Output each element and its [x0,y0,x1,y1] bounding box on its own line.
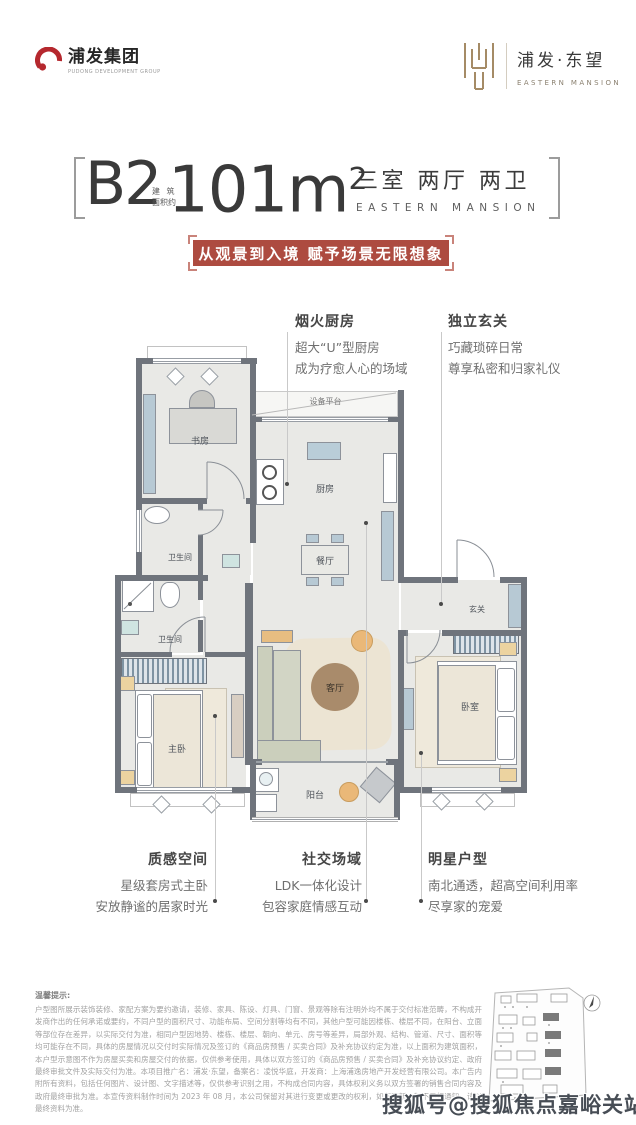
callout-master-title: 质感空间 [58,849,208,869]
room-label-bath2: 卫生间 [148,634,192,645]
callout-social-line1: LDK一体化设计 [218,875,362,896]
room-label-balcony: 阳台 [295,788,335,801]
callout-star: 明星户型 南北通透，超高空间利用率 尽享家的宠爱 [428,849,623,917]
title-bracket-left [74,157,85,219]
leader-line-entry [441,332,442,604]
group-logo: 浦发集团 PUDONG DEVELOPMENT GROUP [35,47,161,75]
callout-star-line2: 尽享家的宠爱 [428,896,623,917]
leader-dot [364,899,368,903]
callout-star-title: 明星户型 [428,849,623,869]
room-label-equipment: 设备平台 [253,396,398,407]
leader-dot [364,521,368,525]
room-label-bath1: 卫生间 [158,552,202,563]
callout-social-line2: 包容家庭情感互动 [218,896,362,917]
group-logo-icon [35,47,62,74]
callout-entry-title: 独立玄关 [448,311,623,331]
floor-plan: 餐厅 客厅 [85,358,528,825]
leader-dot [439,602,443,606]
callout-social: 社交场域 LDK一体化设计 包容家庭情感互动 [218,849,362,917]
brand-logo-name: 浦发·东望 [517,46,621,71]
watermark: 搜狐号@搜狐焦点嘉峪关站 [382,1089,636,1119]
room-label-entry: 玄关 [457,604,497,615]
brand-logo-divider [506,43,507,89]
group-logo-text: 浦发集团 PUDONG DEVELOPMENT GROUP [68,47,161,75]
group-logo-subtitle: PUDONG DEVELOPMENT GROUP [68,69,161,75]
leader-dot [285,482,289,486]
unit-name: B2 [85,152,160,216]
layout-block: 三室 两厅 两卫 EASTERN MANSION [356,163,541,214]
leader-line-master [215,716,216,902]
leader-line-kitchen [287,332,288,484]
banner-corner-mark [445,235,454,244]
leader-dot [213,899,217,903]
layout-rooms: 三室 两厅 两卫 [356,163,541,195]
brand-logo-text: 浦发·东望 EASTERN MANSION [517,46,621,87]
brand-logo: 浦发·东望 EASTERN MANSION [462,40,621,92]
brand-logo-subtitle: EASTERN MANSION [517,79,621,87]
callout-master-line2: 安放静谧的居家时光 [58,896,208,917]
slogan-banner: 从观景到入境 赋予场景无限想象 [193,240,449,266]
area-value: 101m2 [168,146,367,224]
room-label-master: 主卧 [157,742,197,755]
compass-icon [582,993,602,1013]
leader-line-social [366,523,367,902]
unit-code: B2 [85,149,160,219]
callout-kitchen-line1: 超大“U”型厨房 [295,337,455,358]
banner-corner-mark [188,235,197,244]
room-label-kitchen: 厨房 [305,482,345,495]
callout-master-line1: 星级套房式主卧 [58,875,208,896]
layout-subtitle: EASTERN MANSION [356,202,541,214]
leader-line-star [421,753,422,902]
slogan-text: 从观景到入境 赋予场景无限想象 [198,243,443,264]
leader-dot [419,899,423,903]
callout-star-line1: 南北通透，超高空间利用率 [428,875,623,896]
banner-corner-mark [188,262,197,271]
group-logo-name: 浦发集团 [68,47,161,67]
leader-dot [419,751,423,755]
poster-page: { "header": { "group_logo": {"name": "浦发… [0,0,636,1125]
leader-dot [213,714,217,718]
brand-emblem-icon [462,40,496,92]
title-bracket-right [549,157,560,219]
disclaimer-title: 温馨提示: [35,990,482,1001]
callout-social-title: 社交场域 [218,849,362,869]
area-number: 101m [168,153,349,227]
room-label-bedroom: 卧室 [450,700,490,713]
callout-entry-line1: 巧藏琐碎日常 [448,337,623,358]
floor-plan-overlay [85,358,528,825]
room-label-study: 书房 [180,434,220,447]
banner-corner-mark [445,262,454,271]
callout-master: 质感空间 星级套房式主卧 安放静谧的居家时光 [58,849,208,917]
callout-kitchen-title: 烟火厨房 [295,311,455,331]
